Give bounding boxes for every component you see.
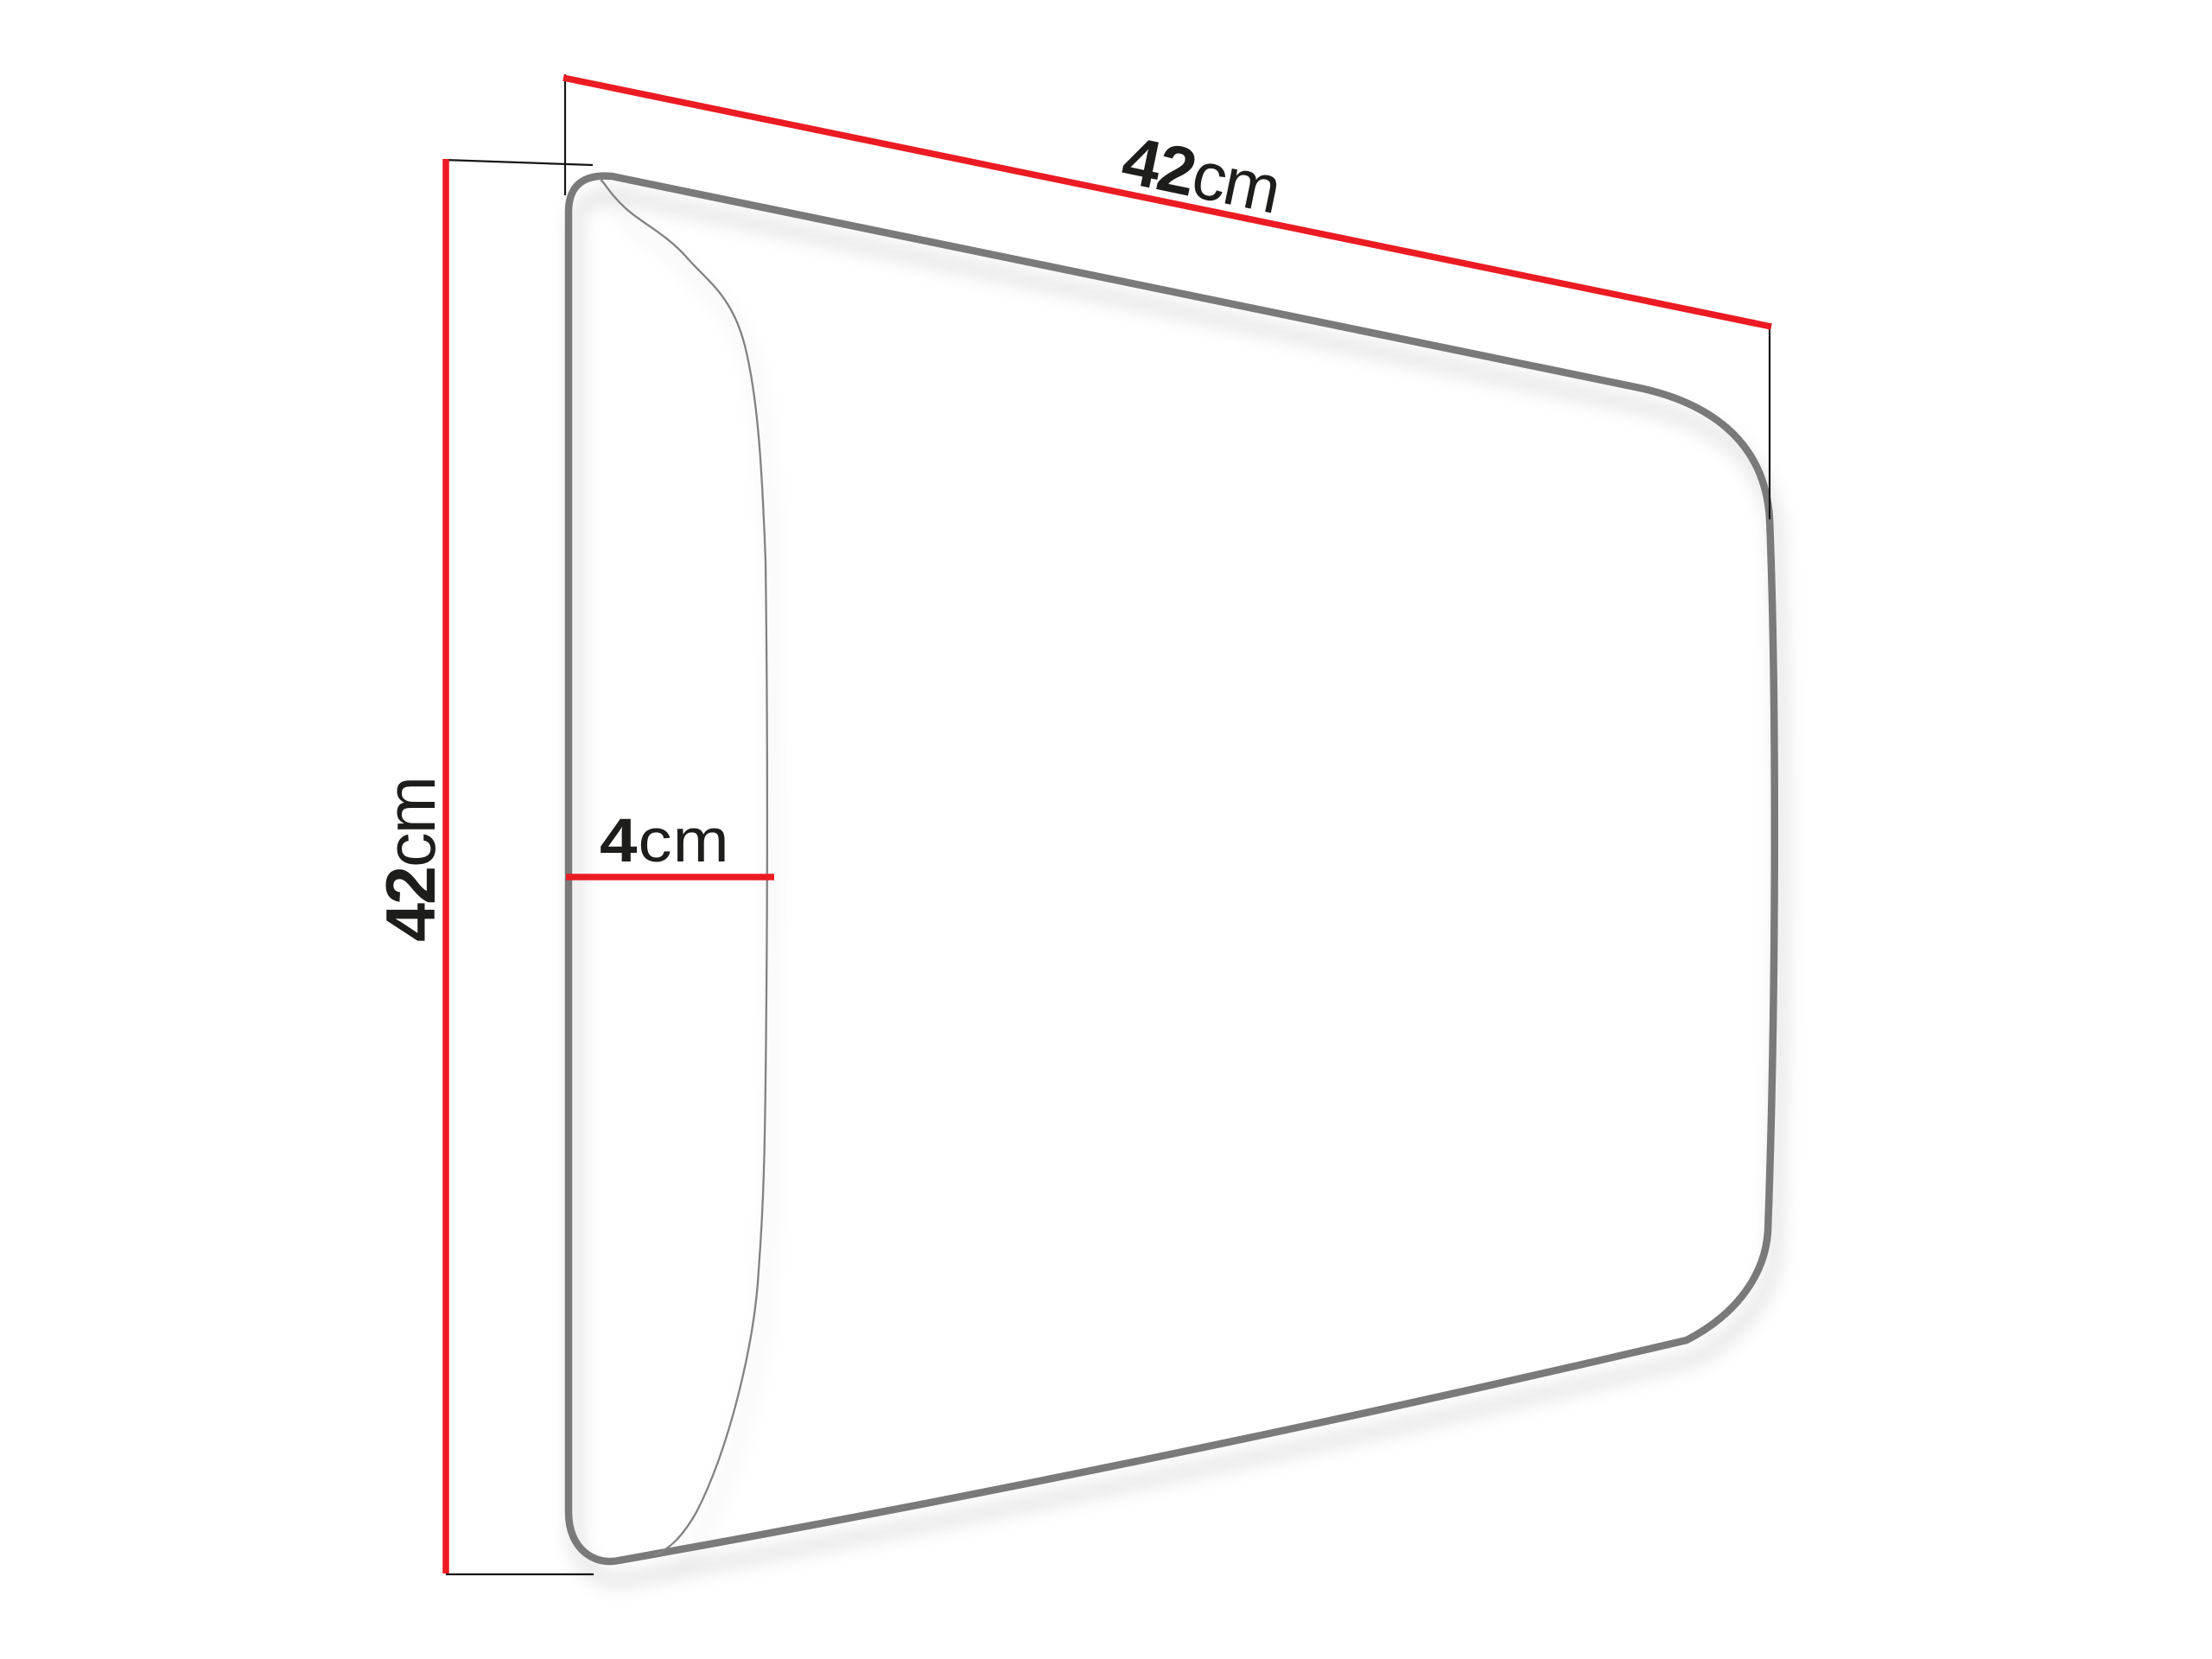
- svg-text:42cm: 42cm: [1116, 121, 1287, 227]
- svg-text:4cm: 4cm: [600, 805, 730, 874]
- svg-text:42cm: 42cm: [372, 778, 450, 942]
